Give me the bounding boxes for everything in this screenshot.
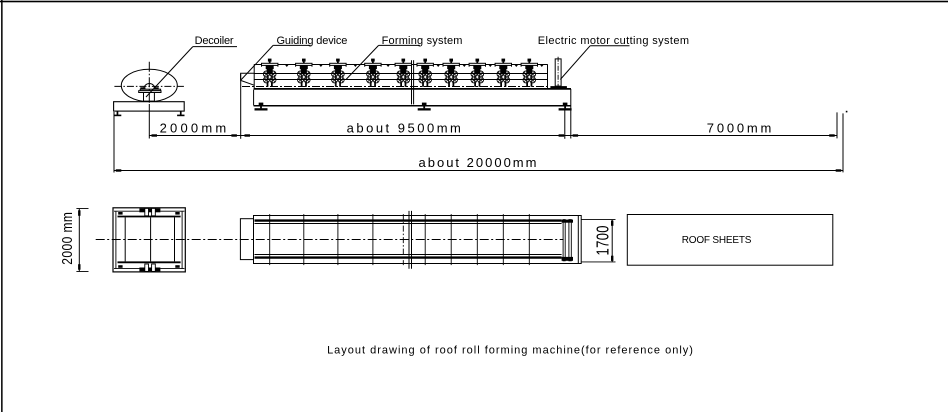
svg-text:7000mm: 7000mm	[707, 121, 774, 136]
svg-text:about 20000mm: about 20000mm	[419, 155, 539, 170]
svg-text:Layout drawing of roof roll fo: Layout drawing of roof roll forming mach…	[327, 345, 694, 357]
svg-text:Decoiler: Decoiler	[195, 35, 234, 47]
svg-text:ROOF SHEETS: ROOF SHEETS	[682, 235, 752, 246]
svg-text:about 9500mm: about 9500mm	[347, 121, 464, 136]
svg-text:Electric motor cutting system: Electric motor cutting system	[538, 35, 690, 47]
svg-text:2000 mm: 2000 mm	[59, 212, 76, 265]
svg-text:1700: 1700	[594, 225, 613, 255]
svg-text:2000mm: 2000mm	[160, 121, 230, 136]
